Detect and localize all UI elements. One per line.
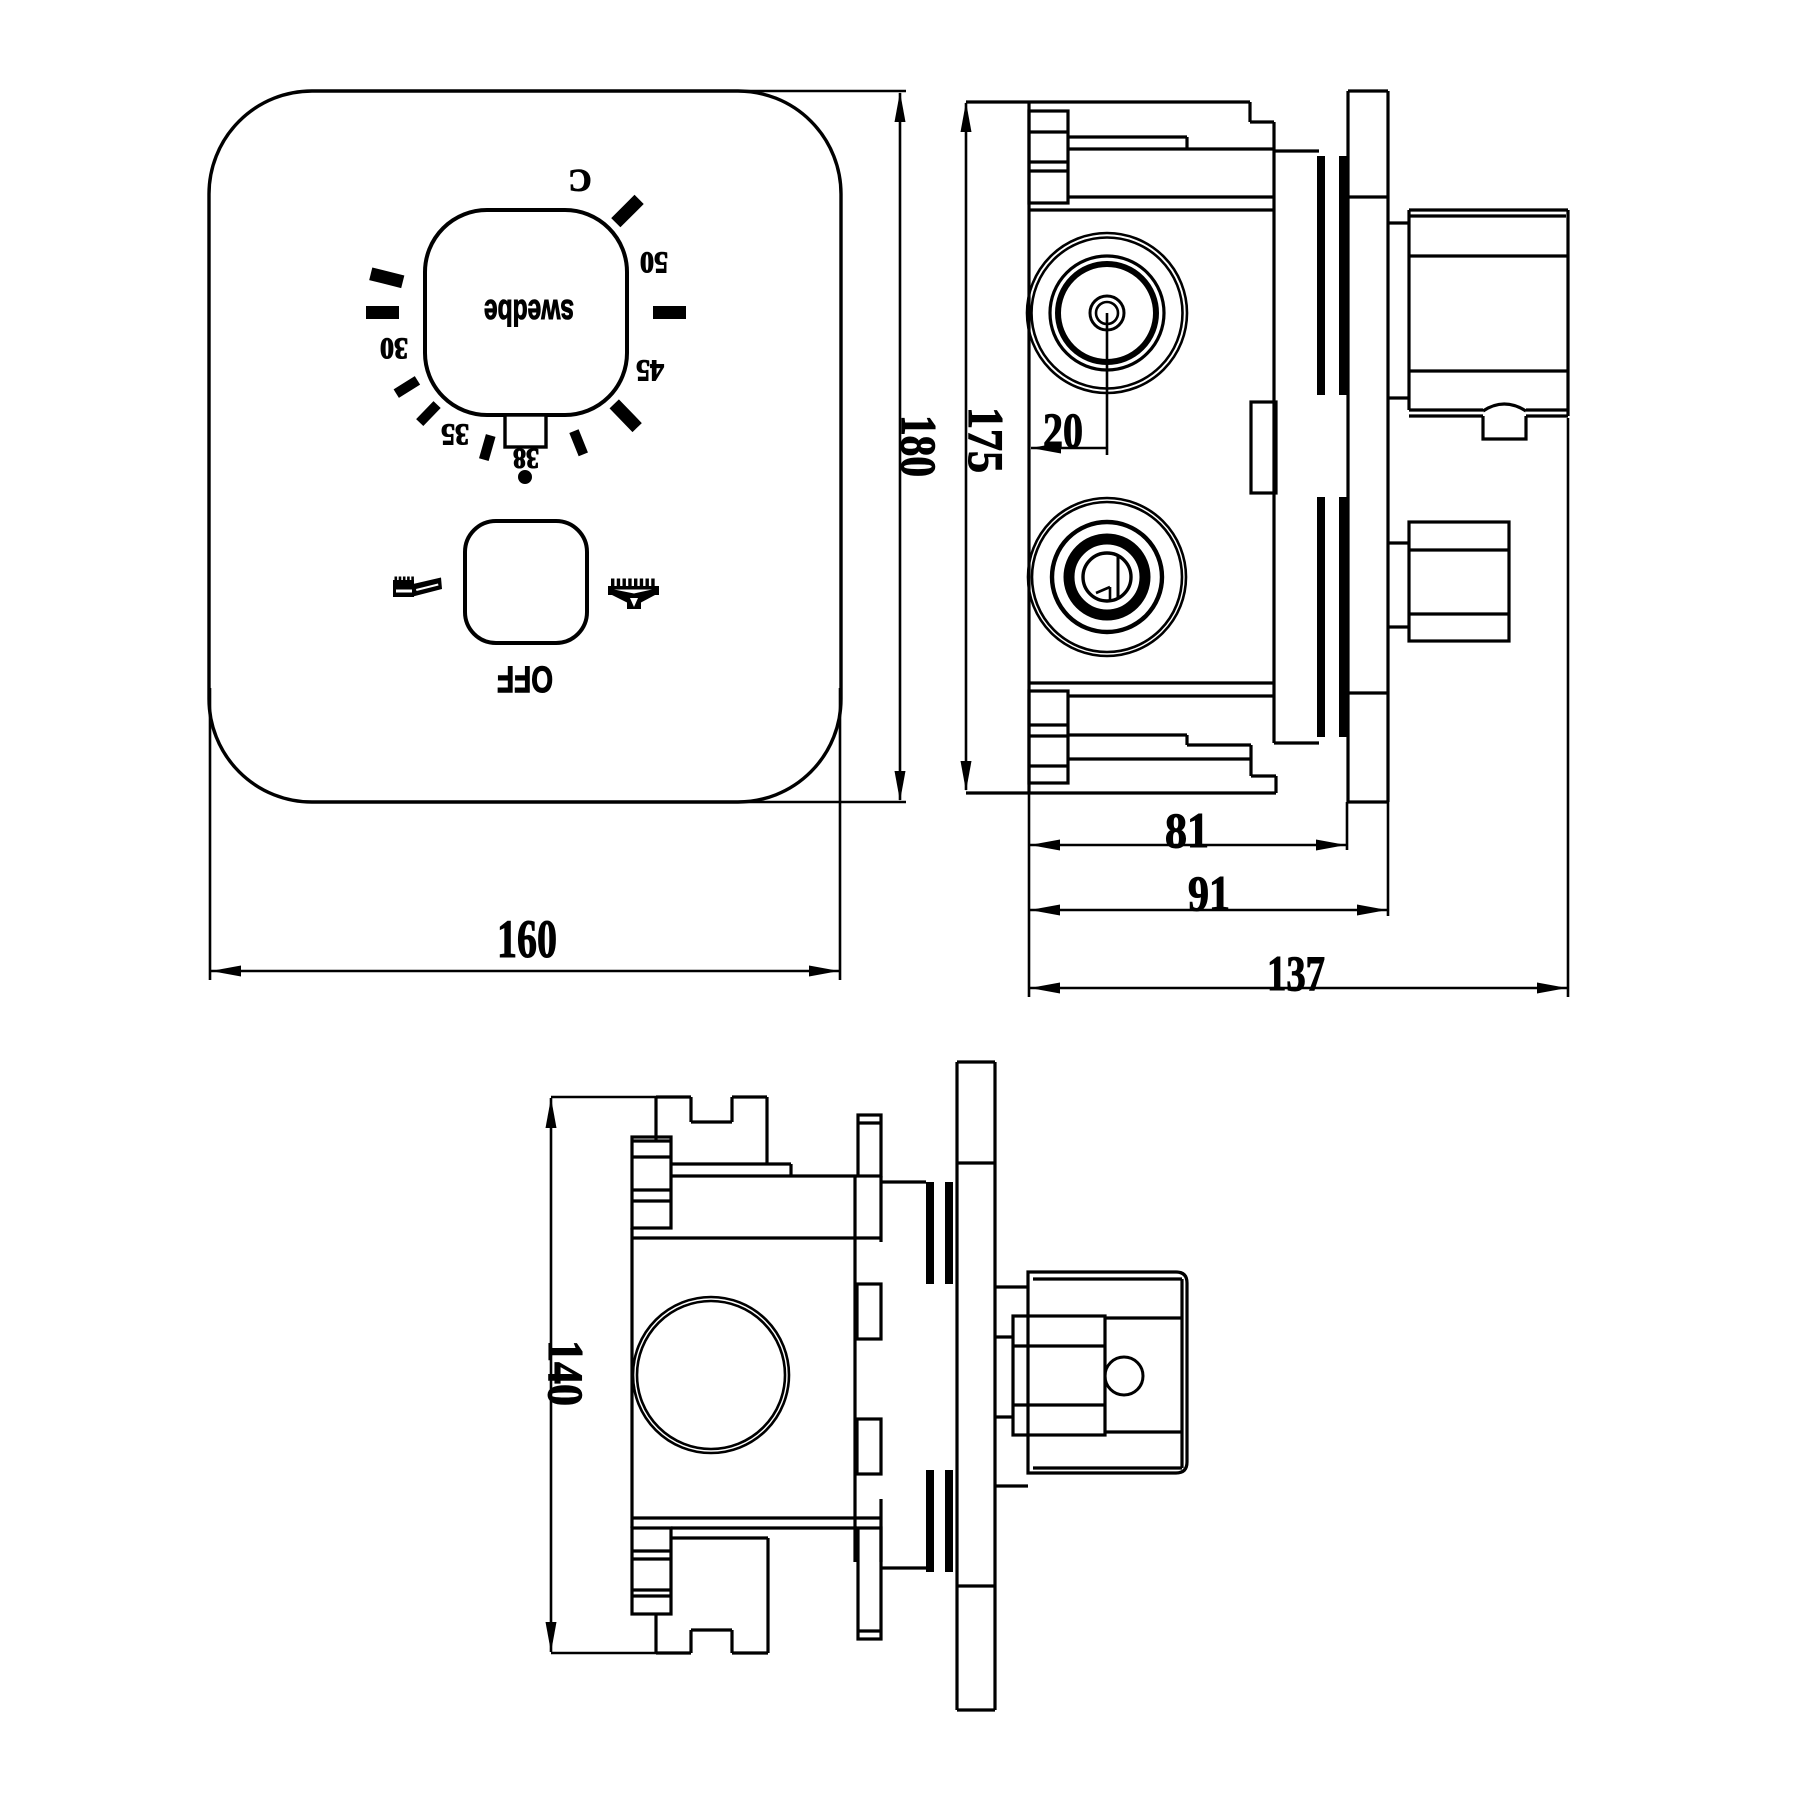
svg-text:180: 180 <box>891 415 947 477</box>
svg-text:50: 50 <box>640 246 668 281</box>
svg-text:45: 45 <box>636 354 664 389</box>
svg-text:160: 160 <box>497 909 557 969</box>
svg-text:OFF: OFF <box>497 659 553 700</box>
svg-text:140: 140 <box>538 1340 594 1406</box>
svg-text:swedbe: swedbe <box>484 292 574 333</box>
svg-text:30: 30 <box>380 332 408 367</box>
svg-text:91: 91 <box>1188 865 1230 921</box>
svg-text:81: 81 <box>1165 802 1209 858</box>
svg-text:20: 20 <box>1043 402 1083 458</box>
svg-text:175: 175 <box>958 407 1014 473</box>
svg-text:C: C <box>568 163 591 199</box>
svg-text:38: 38 <box>513 442 539 474</box>
svg-text:137: 137 <box>1267 945 1325 1001</box>
svg-text:35: 35 <box>441 418 469 453</box>
